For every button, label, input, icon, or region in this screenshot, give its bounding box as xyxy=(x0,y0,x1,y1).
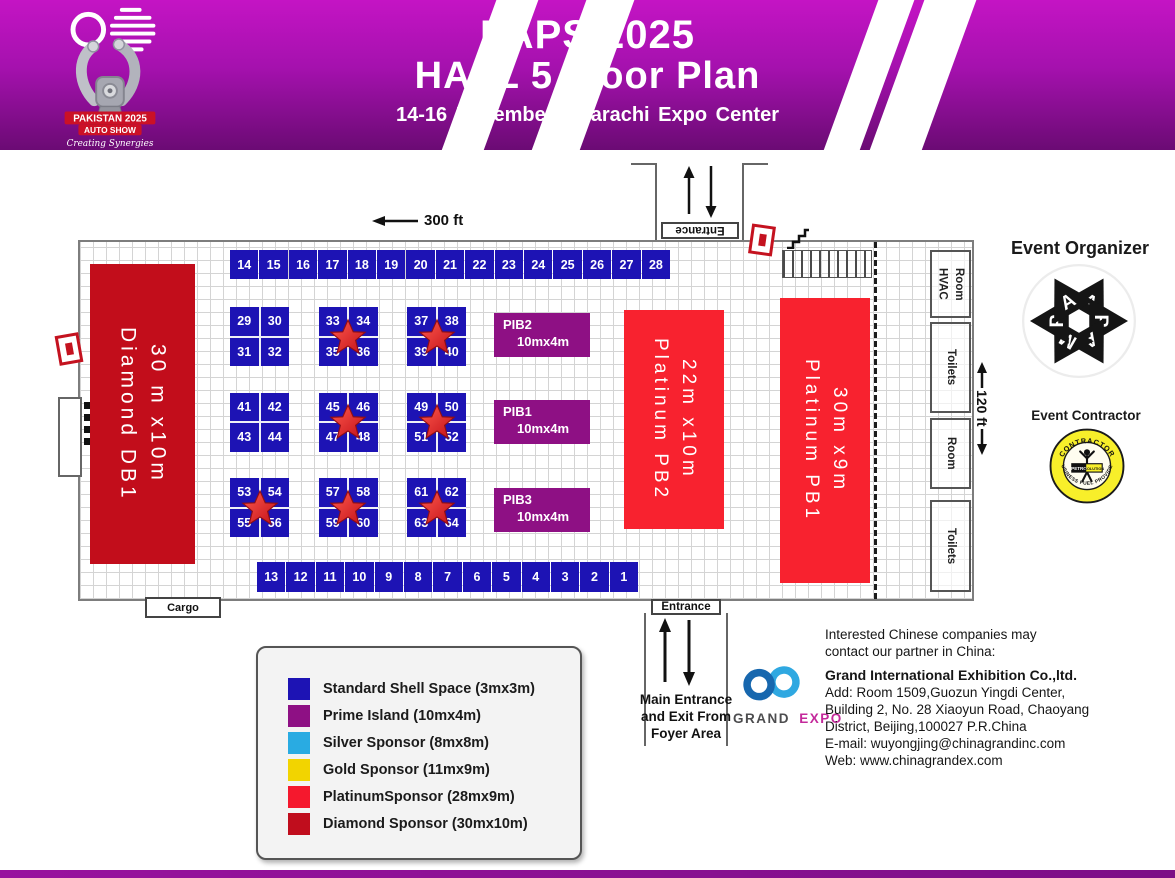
booth-15: 15 xyxy=(259,250,287,279)
room-label: Room xyxy=(942,437,959,470)
partner-web: Web: www.chinagrandex.com xyxy=(825,752,1105,769)
legend-items: Standard Shell Space (3mx3m)Prime Island… xyxy=(288,678,535,835)
booth-16: 16 xyxy=(289,250,317,279)
partner-company: Grand International Exhibition Co.,ltd. xyxy=(825,667,1105,684)
booth-29: 29 xyxy=(230,307,259,336)
top-corridor-wall-right xyxy=(742,163,744,240)
partner-email: E-mail: wuyongjing@chinagrandinc.com xyxy=(825,735,1105,752)
booth-56: 56 xyxy=(261,509,290,538)
booth-31: 31 xyxy=(230,338,259,367)
booth-2: 2 xyxy=(580,562,608,592)
partner-intro-1: Interested Chinese companies may xyxy=(825,626,1105,643)
legend-label: PlatinumSponsor (28mx9m) xyxy=(323,789,515,805)
legend-swatch xyxy=(288,705,310,727)
booth-25: 25 xyxy=(553,250,581,279)
booth-46: 46 xyxy=(349,393,378,422)
grand-expo-wordmark: GRAND EXPO xyxy=(733,711,817,726)
paapam-logo: APAMPA xyxy=(1022,264,1136,378)
booth-51: 51 xyxy=(407,423,436,452)
booth-49: 49 xyxy=(407,393,436,422)
legend-swatch xyxy=(288,786,310,808)
booth-50: 50 xyxy=(438,393,467,422)
booth-60: 60 xyxy=(349,509,378,538)
room-toilets-1: Toilets xyxy=(930,322,971,413)
page-title: PAPS 2025 xyxy=(0,14,1175,56)
island-block-53-56: 53545556 xyxy=(230,478,289,537)
booth-1: 1 xyxy=(610,562,638,592)
pib1-name: PIB1 xyxy=(503,404,590,421)
island-block-49-52: 49505152 xyxy=(407,393,466,452)
island-block-45-48: 45464748 xyxy=(319,393,378,452)
pib3-name: PIB3 xyxy=(503,492,590,509)
booth-35: 35 xyxy=(319,338,348,367)
bottom-entrance-label: Entrance xyxy=(651,599,721,615)
booth-8: 8 xyxy=(404,562,432,592)
width-dimension: 300 ft xyxy=(372,212,463,229)
booth-39: 39 xyxy=(407,338,436,367)
booth-18: 18 xyxy=(348,250,376,279)
pib2-size: 10mx4m xyxy=(517,334,590,351)
partner-intro-2: contact our partner in China: xyxy=(825,643,1105,660)
partner-address-1: Add: Room 1509,Guozun Yingdi Center, xyxy=(825,684,1105,701)
booth-36: 36 xyxy=(349,338,378,367)
legend-row: Silver Sponsor (8mx8m) xyxy=(288,732,535,754)
page-subtitle-hall: HALL 5 Floor Plan xyxy=(0,56,1175,98)
booth-10: 10 xyxy=(345,562,373,592)
partner-address-3: District, Beijing,100027 P.R.China xyxy=(825,718,1105,735)
booth-64: 64 xyxy=(438,509,467,538)
grand-expo-logo: GRAND EXPO xyxy=(733,662,817,726)
booth-47: 47 xyxy=(319,423,348,452)
booth-23: 23 xyxy=(495,250,523,279)
booth-14: 14 xyxy=(230,250,258,279)
stairs-steps-icon xyxy=(786,227,810,249)
down-arrow-icon xyxy=(976,429,988,455)
booth-58: 58 xyxy=(349,478,378,507)
top-booth-row: 141516171819202122232425262728 xyxy=(230,250,670,279)
event-contractor-heading: Event Contractor xyxy=(1016,408,1156,423)
up-arrow-icon xyxy=(658,618,672,684)
pib3-size: 10mx4m xyxy=(517,509,590,526)
booth-7: 7 xyxy=(433,562,461,592)
top-entrance-label: Entrance xyxy=(661,222,739,239)
down-arrow-icon xyxy=(704,164,718,218)
booth-57: 57 xyxy=(319,478,348,507)
top-corridor-cap-left xyxy=(631,163,657,165)
header-titles: PAPS 2025 HALL 5 Floor Plan 14-16 Novemb… xyxy=(0,14,1175,127)
booth-32: 32 xyxy=(261,338,290,367)
booth-5: 5 xyxy=(492,562,520,592)
booth-11: 11 xyxy=(316,562,344,592)
booth-63: 63 xyxy=(407,509,436,538)
room-label: Toilets xyxy=(942,528,959,564)
booth-4: 4 xyxy=(522,562,550,592)
logo-tagline: Creating Synergies xyxy=(67,139,154,149)
booth-19: 19 xyxy=(377,250,405,279)
legend-row: Diamond Sponsor (30mx10m) xyxy=(288,813,535,835)
booth-20: 20 xyxy=(406,250,434,279)
island-booth-grid: 2930313233343536373839404142434445464748… xyxy=(230,307,466,537)
island-block-41-44: 41424344 xyxy=(230,393,289,452)
poster: PAPS 2025 HALL 5 Floor Plan 14-16 Novemb… xyxy=(0,0,1175,878)
booth-24: 24 xyxy=(524,250,552,279)
down-arrow-icon xyxy=(682,618,696,686)
legend-swatch xyxy=(288,732,310,754)
booth-21: 21 xyxy=(436,250,464,279)
infinity-icon xyxy=(737,662,813,704)
booth-22: 22 xyxy=(465,250,493,279)
legend-swatch xyxy=(288,678,310,700)
pib1-size: 10mx4m xyxy=(517,421,590,438)
booth-13: 13 xyxy=(257,562,285,592)
partition-dashed-wall xyxy=(874,242,877,599)
height-dimension-label: 120 ft xyxy=(974,390,990,427)
booth-61: 61 xyxy=(407,478,436,507)
booth-45: 45 xyxy=(319,393,348,422)
booth-53: 53 xyxy=(230,478,259,507)
pib2-name: PIB2 xyxy=(503,317,590,334)
solution-word: SOLUTION xyxy=(1084,467,1104,471)
cargo-label: Cargo xyxy=(145,597,221,618)
booth-30: 30 xyxy=(261,307,290,336)
booth-3: 3 xyxy=(551,562,579,592)
booth-38: 38 xyxy=(438,307,467,336)
legend-row: Gold Sponsor (11mx9m) xyxy=(288,759,535,781)
booth-12: 12 xyxy=(286,562,314,592)
booth-41: 41 xyxy=(230,393,259,422)
booth-62: 62 xyxy=(438,478,467,507)
booth-42: 42 xyxy=(261,393,290,422)
legend-swatch xyxy=(288,759,310,781)
room-hvac-room-0: HVAC Room xyxy=(930,250,971,318)
room-label: Toilets xyxy=(942,349,959,385)
paps-robot-logo: PAKISTAN 2025 AUTO SHOW Creating Synergi… xyxy=(58,2,162,150)
booth-55: 55 xyxy=(230,509,259,538)
island-block-37-40: 37383940 xyxy=(407,307,466,366)
logo-name-line1: PAKISTAN 2025 xyxy=(73,113,147,124)
top-corridor-cap-right xyxy=(742,163,768,165)
diamond-db1-size: 30 m x10m xyxy=(146,344,170,484)
booth-17: 17 xyxy=(318,250,346,279)
fire-extinguisher-icon xyxy=(748,223,776,256)
island-block-57-60: 57585960 xyxy=(319,478,378,537)
island-block-33-36: 33343536 xyxy=(319,307,378,366)
height-dimension: 120 ft xyxy=(974,362,990,455)
booth-40: 40 xyxy=(438,338,467,367)
fire-extinguisher-icon xyxy=(55,332,84,366)
stairs-hatch xyxy=(782,250,872,278)
legend-panel: Standard Shell Space (3mx3m)Prime Island… xyxy=(256,646,582,860)
booth-59: 59 xyxy=(319,509,348,538)
legend-row: Standard Shell Space (3mx3m) xyxy=(288,678,535,700)
top-corridor-wall-left xyxy=(655,163,657,240)
main-entrance-caption: Main Entrance and Exit From Foyer Area xyxy=(631,692,741,743)
legend-label: Silver Sponsor (8mx8m) xyxy=(323,735,489,751)
up-arrow-icon xyxy=(976,362,988,388)
bottom-booth-row: 13121110987654321 xyxy=(257,562,638,592)
china-partner-info: Interested Chinese companies may contact… xyxy=(825,626,1105,769)
legend-label: Gold Sponsor (11mx9m) xyxy=(323,762,490,778)
platinum-pb2-size: 22m x10m xyxy=(677,359,699,480)
up-arrow-icon xyxy=(682,166,696,216)
booth-43: 43 xyxy=(230,423,259,452)
room-label: HVAC Room xyxy=(934,268,967,301)
platinum-pb2-name: Platinum PB2 xyxy=(649,338,671,501)
island-block-61-64: 61626364 xyxy=(407,478,466,537)
legend-label: Diamond Sponsor (30mx10m) xyxy=(323,816,528,832)
booth-44: 44 xyxy=(261,423,290,452)
logo-ring-icon xyxy=(73,14,104,45)
booth-37: 37 xyxy=(407,307,436,336)
booth-52: 52 xyxy=(438,423,467,452)
prime-island-pib2: PIB2 10mx4m xyxy=(494,313,590,357)
legend-row: Prime Island (10mx4m) xyxy=(288,705,535,727)
platinum-pb1-block: Platinum PB1 30m x9m xyxy=(780,298,870,583)
header-banner: PAPS 2025 HALL 5 Floor Plan 14-16 Novemb… xyxy=(0,0,1175,150)
booth-33: 33 xyxy=(319,307,348,336)
prime-island-pib3: PIB3 10mx4m xyxy=(494,488,590,532)
diamond-db1-name: Diamond DB1 xyxy=(116,327,140,502)
booth-48: 48 xyxy=(349,423,378,452)
booth-28: 28 xyxy=(642,250,670,279)
exit-marks xyxy=(84,402,90,448)
footer-bar xyxy=(0,870,1175,878)
booth-6: 6 xyxy=(463,562,491,592)
booth-26: 26 xyxy=(583,250,611,279)
legend-row: PlatinumSponsor (28mx9m) xyxy=(288,786,535,808)
booth-9: 9 xyxy=(375,562,403,592)
platinum-pb1-size: 30m x9m xyxy=(828,387,850,493)
legend-swatch xyxy=(288,813,310,835)
room-room-2: Room xyxy=(930,418,971,489)
event-date-venue: 14-16 November | Karachi Expo Center xyxy=(0,104,1175,127)
booth-54: 54 xyxy=(261,478,290,507)
diamond-db1-block: Diamond DB1 30 m x10m xyxy=(90,264,195,564)
prime-island-pib1: PIB1 10mx4m xyxy=(494,400,590,444)
booth-34: 34 xyxy=(349,307,378,336)
platinum-pb2-block: Platinum PB2 22m x10m xyxy=(624,310,724,529)
booth-27: 27 xyxy=(612,250,640,279)
legend-label: Prime Island (10mx4m) xyxy=(323,708,481,724)
width-dimension-label: 300 ft xyxy=(424,212,463,229)
legend-label: Standard Shell Space (3mx3m) xyxy=(323,681,535,697)
hall-floorplan: 141516171819202122232425262728 131211109… xyxy=(78,240,974,601)
grand-word: GRAND xyxy=(733,711,790,726)
island-block-29-32: 29303132 xyxy=(230,307,289,366)
logo-name-line2: AUTO SHOW xyxy=(84,125,136,135)
left-arrow-icon xyxy=(372,215,418,227)
platinum-pb1-name: Platinum PB1 xyxy=(800,359,822,522)
event-organizer-heading: Event Organizer xyxy=(1005,238,1155,259)
room-toilets-3: Toilets xyxy=(930,500,971,592)
side-door xyxy=(58,397,82,477)
partner-address-2: Building 2, No. 28 Xiaoyun Road, Chaoyan… xyxy=(825,701,1105,718)
petro-solution-logo: CONTRACTOR BUSINESS FUEL PROVIDER PETRO … xyxy=(1049,428,1125,504)
